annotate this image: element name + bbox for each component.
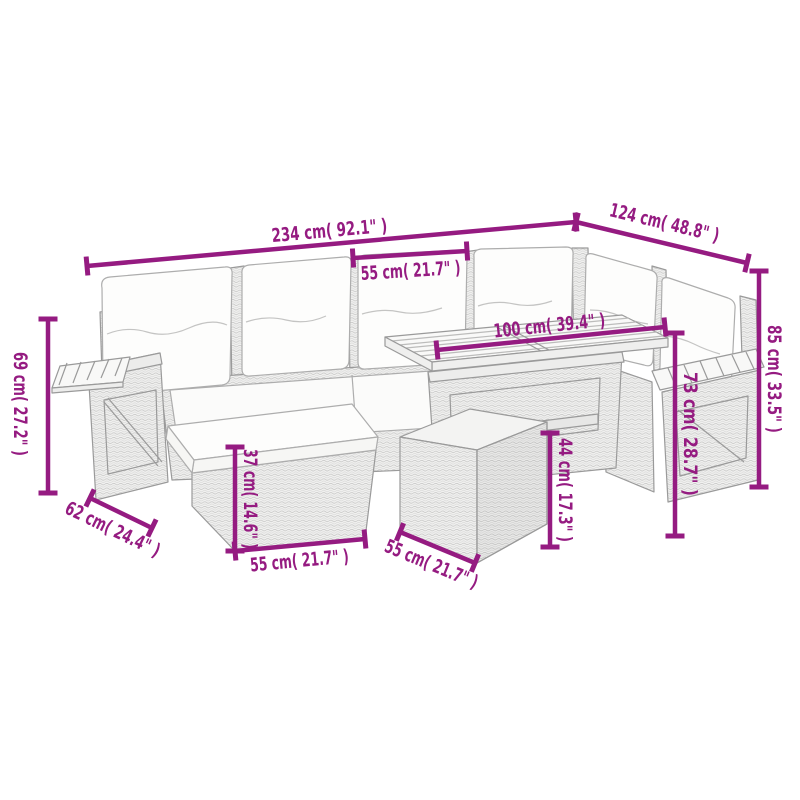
dimension-label-back-height: 85 cm( 33.5" ) xyxy=(763,325,785,433)
dimension-label-stool-height: 37 cm( 14.6" ) xyxy=(239,449,261,549)
dimension-tick-table-length-start xyxy=(436,341,438,360)
footstool xyxy=(166,404,378,551)
furniture-illustration: 234 cm( 92.1" )124 cm( 48.8" )55 cm( 21.… xyxy=(0,0,800,800)
left-shelf xyxy=(52,357,130,393)
dimension-tick-total-width-start xyxy=(86,257,88,276)
dimension-label-right-depth: 124 cm( 48.8" ) xyxy=(607,199,721,247)
dimension-tick-stool-width-start xyxy=(234,542,236,561)
right-armrest xyxy=(652,349,764,502)
dimension-tick-seat-width-end xyxy=(466,242,467,261)
dimension-label-armrest-height: 69 cm( 27.2" ) xyxy=(9,352,31,456)
left-armrest xyxy=(52,353,168,500)
dimension-tick-stool-width-end xyxy=(364,530,366,549)
dimension-tick-seat-width-start xyxy=(352,249,353,268)
dimension-tick-right-depth-end xyxy=(745,254,749,272)
dimension-label-table-height: 73 cm( 28.7" ) xyxy=(679,372,701,496)
dimension-label-cube-height: 44 cm( 17.3" ) xyxy=(554,438,576,542)
product-dimension-diagram: 234 cm( 92.1" )124 cm( 48.8" )55 cm( 21.… xyxy=(0,0,800,800)
